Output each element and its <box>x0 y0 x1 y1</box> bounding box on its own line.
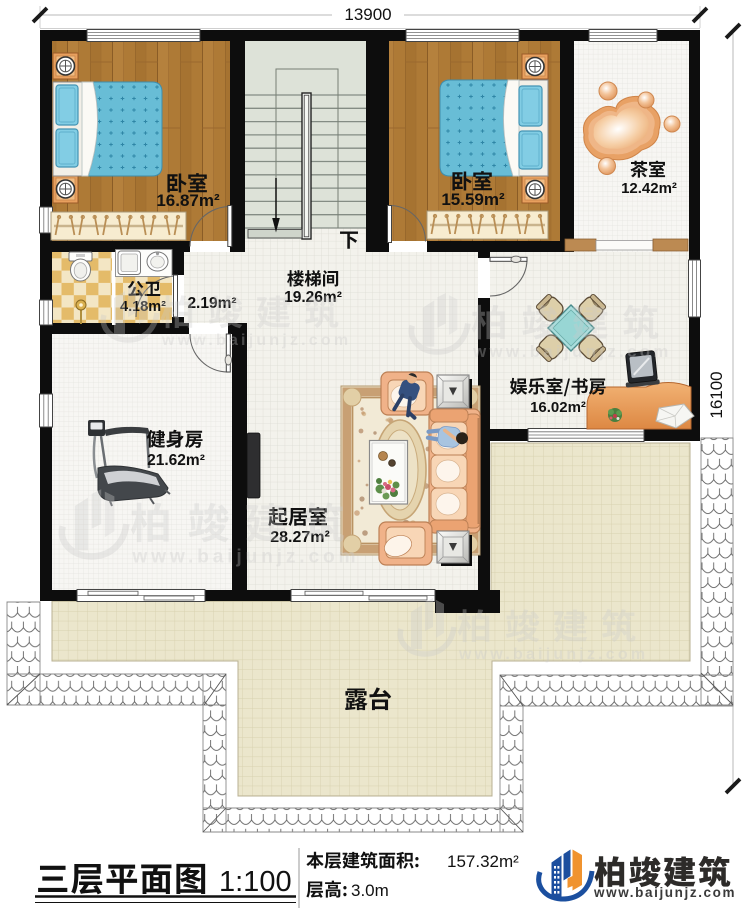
svg-text:13900: 13900 <box>344 5 391 24</box>
svg-text:3.0m: 3.0m <box>351 881 389 900</box>
svg-text:16100: 16100 <box>707 371 726 418</box>
svg-text:15.59m²: 15.59m² <box>441 190 505 209</box>
svg-text:21.62m²: 21.62m² <box>147 452 205 469</box>
svg-text:157.32m²: 157.32m² <box>447 852 519 871</box>
svg-text:www.baijunjz.com: www.baijunjz.com <box>161 332 351 349</box>
svg-text:16.02m²: 16.02m² <box>530 399 586 416</box>
svg-text:www.baijunjz.com: www.baijunjz.com <box>131 546 359 567</box>
svg-text:www.baijunjz.com: www.baijunjz.com <box>593 885 736 900</box>
svg-text:www.baijunjz.com: www.baijunjz.com <box>458 646 648 663</box>
svg-text:16.87m²: 16.87m² <box>156 191 220 210</box>
svg-text:www.baijunjz.com: www.baijunjz.com <box>472 342 672 361</box>
svg-text:12.42m²: 12.42m² <box>621 180 677 197</box>
svg-text:1:100: 1:100 <box>219 866 292 898</box>
